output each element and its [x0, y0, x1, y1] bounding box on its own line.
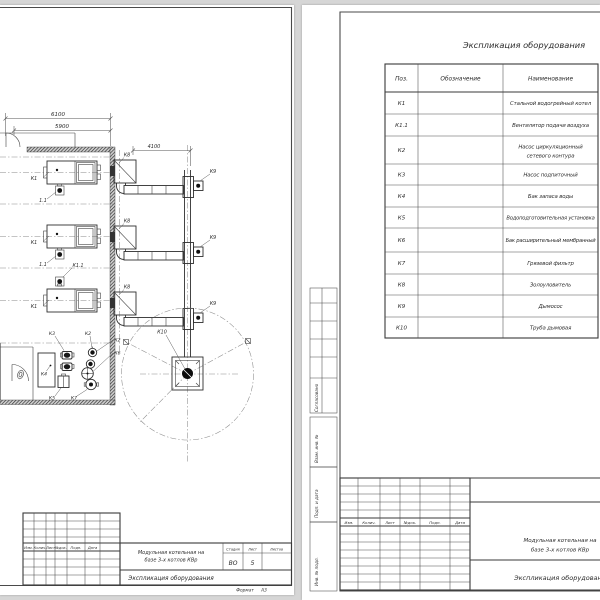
spec-h-name: Наименование: [528, 77, 573, 83]
format-label: Формат: [236, 588, 254, 594]
spec-pos-k1-1: К1.1: [395, 123, 408, 129]
spec-pos-k4: К4: [398, 194, 406, 200]
flue-row-1: К8 К9: [110, 153, 216, 198]
spec-pos-k8: К8: [398, 283, 406, 289]
lstamp-stage-h: Стадия: [226, 548, 239, 552]
margin-podp: Подп. и дата: [314, 489, 319, 518]
spec-pos-k6: К6: [398, 238, 406, 244]
spec-row-k2: К2 Насос циркуляционный сетевого контура: [398, 145, 583, 160]
lstamp-col-data: Дата: [87, 546, 97, 550]
spec-row-k9: К9 Дымосос: [398, 304, 563, 310]
spec-drawing: Согласовано Взам. инв. № Подп. и дата Ин…: [302, 5, 600, 600]
label-k8-2: К8: [124, 219, 130, 225]
spec-row-k10: К10 Труба дымовая: [396, 326, 572, 332]
spec-row-k8: К8 Золоуловитель: [398, 283, 571, 289]
boiler-2: К1 1.1: [31, 225, 101, 268]
spec-row-k6: К6 Бак расширительный мембранный: [398, 238, 596, 244]
label-k1-fan-1: 1.1: [39, 198, 47, 204]
spec-pos-k5: К5: [398, 216, 406, 222]
margin-columns: Согласовано Взам. инв. № Подп. и дата Ин…: [310, 288, 337, 591]
spec-h-mark: Обозначение: [440, 77, 481, 83]
label-k1-3: К1: [31, 304, 37, 310]
spec-row-k5: К5 Водоподготовительная установка: [398, 216, 595, 222]
label-k4: К4: [41, 372, 47, 378]
rstamp-col-kolich: Колич.: [362, 520, 375, 525]
spec-name-k10: Труба дымовая: [530, 326, 572, 332]
dim-4100-text: 4100: [148, 144, 161, 150]
spec-name2-k2: сетевого контура: [527, 154, 575, 160]
spec-name-k3: Насос подпиточный: [523, 173, 578, 179]
margin-soglasovano: Согласовано: [314, 383, 319, 412]
spec-pos-k2: К2: [398, 148, 406, 154]
label-k1-fan-2: 1.1: [39, 262, 47, 268]
spec-name-k8: Золоуловитель: [530, 283, 571, 289]
spec-row-k4: К4 Бак запаса воды: [398, 194, 574, 200]
boiler-1: К1 1.1: [31, 161, 101, 204]
label-k9-1: К9: [210, 169, 216, 175]
spec-pos-k7: К7: [398, 261, 406, 267]
flue-row-3: К8 К9: [110, 285, 216, 330]
boiler-3: К1.1 К1: [31, 263, 101, 312]
spec-name-k6: Бак расширительный мембранный: [506, 238, 597, 244]
lstamp-stage-value: ВО: [229, 560, 238, 567]
spec-pos-k10: К10: [396, 326, 407, 332]
rstamp-col-izm: Изм.: [345, 520, 354, 525]
spec-pos-k1: К1: [398, 101, 405, 107]
lstamp-col-kolich: Колич.: [34, 546, 47, 550]
spec-pos-k3: К3: [398, 173, 406, 179]
equipment-room: К4 К3 К2 К2 К6 К5: [12, 331, 121, 402]
label-k1-1: К1: [31, 176, 37, 182]
label-k1-fan-3: К1.1: [72, 263, 83, 269]
lstamp-sheet-h: Лист: [247, 548, 258, 552]
spec-table-title: Экспликация оборудования: [462, 40, 585, 50]
spec-name-k4: Бак запаса воды: [528, 194, 574, 200]
lstamp-doc-title: Экспликация оборудования: [127, 576, 214, 582]
dimension-4100: 4100: [131, 144, 193, 166]
dim-5900-text: 5900: [55, 124, 69, 130]
dimension-5900: 5900: [12, 124, 113, 135]
spec-h-pos: Поз.: [395, 77, 408, 83]
spec-name-k9: Дымосос: [537, 304, 562, 310]
spec-name-k5: Водоподготовительная установка: [506, 216, 594, 222]
spec-name-k7: Грязевой фильтр: [527, 261, 574, 267]
spec-pos-k9: К9: [398, 304, 406, 310]
lstamp-project-2: базе 3-х котлов КВр: [145, 558, 198, 564]
rstamp-project-1: Модульная котельная на: [524, 538, 598, 544]
lstamp-col-podp: Подп.: [71, 546, 82, 550]
spec-row-k1: К1 Стальной водогрейный котел: [398, 101, 592, 107]
format-value: А3: [260, 588, 267, 594]
label-k9-3: К9: [210, 301, 216, 307]
label-k8-3: К8: [124, 285, 130, 291]
label-k10: К10: [157, 330, 167, 336]
label-k5: К5: [49, 396, 55, 402]
lstamp-sheets-h: Листов: [269, 548, 283, 552]
margin-inv: Инв. № подл.: [314, 557, 319, 586]
flue-row-2: К8 К9: [110, 219, 216, 264]
lstamp-col-izm: Изм.: [24, 546, 32, 550]
rstamp-doc-title: Экспликация оборудования: [513, 574, 600, 582]
rstamp-col-podp: Подп.: [429, 520, 441, 525]
rstamp-col-ndok: №док.: [403, 520, 416, 525]
rstamp-col-list: Лист: [384, 520, 395, 525]
rstamp-project-2: базе 3-х котлов КВр: [531, 548, 590, 554]
lstamp-sheet-value: 5: [251, 560, 255, 567]
label-k8-1: К8: [124, 153, 130, 159]
spec-row-k1-1: К1.1 Вентилятор подачи воздуха: [395, 123, 589, 129]
spec-table: Поз. Обозначение Наименование К1 Стально…: [385, 64, 598, 338]
plan-drawing: 6100 5900 4100 К1 1.1: [0, 5, 294, 595]
spec-name-k2: Насос циркуляционный: [518, 145, 583, 151]
spec-row-k3: К3 Насос подпиточный: [398, 173, 578, 179]
rstamp-col-data: Дата: [454, 520, 466, 525]
margin-vzam: Взам. инв. №: [314, 434, 319, 463]
label-k2-top: К2: [85, 331, 91, 337]
left-title-block: Изм. Колич. Лист №док. Подп. Дата Модуль…: [23, 513, 292, 594]
lstamp-project-1: Модульная котельная на: [138, 550, 204, 556]
spec-name-k1: Стальной водогрейный котел: [510, 101, 592, 107]
label-k3: К3: [49, 331, 55, 337]
dim-6100-text: 6100: [51, 112, 65, 118]
label-k7: К7: [71, 396, 77, 402]
label-k1-2: К1: [31, 240, 37, 246]
label-k2-right: К2: [114, 338, 120, 344]
spec-sheet-page: Согласовано Взам. инв. № Подп. и дата Ин…: [302, 5, 600, 600]
plan-sheet-page: 6100 5900 4100 К1 1.1: [0, 5, 294, 595]
label-k6: К6: [114, 351, 120, 357]
label-k9-2: К9: [210, 235, 216, 241]
lstamp-col-ndok: №док.: [54, 546, 67, 550]
spec-name-k1-1: Вентилятор подачи воздуха: [512, 123, 589, 129]
right-title-block: Изм. Колич. Лист №док. Подп. Дата Модуль…: [340, 478, 600, 590]
spec-row-k7: К7 Грязевой фильтр: [398, 261, 575, 267]
